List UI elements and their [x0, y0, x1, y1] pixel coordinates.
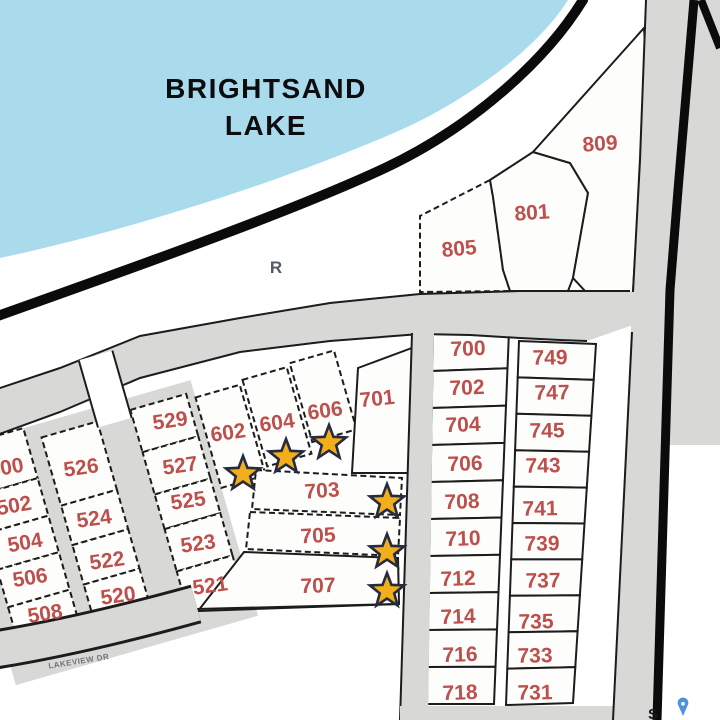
lot-label-731: 731: [517, 681, 553, 705]
lot-label-809: 809: [582, 131, 619, 156]
lot-label-718: 718: [442, 681, 478, 705]
lot-label-710: 710: [445, 527, 481, 551]
lot-label-524: 524: [75, 505, 113, 533]
lot-label-527: 527: [161, 452, 199, 480]
road-shoulder: [400, 706, 615, 720]
lot-label-805: 805: [441, 236, 478, 262]
lot-label-716: 716: [442, 643, 478, 667]
lot-label-525: 525: [169, 487, 207, 515]
watermark-text: S: [648, 706, 658, 720]
lot-label-522: 522: [88, 547, 126, 575]
lake-title-line1: BRIGHTSAND: [165, 73, 367, 104]
lot-label-700: 700: [450, 337, 486, 361]
lot-label-749: 749: [532, 346, 567, 370]
road-letter-label: R: [270, 258, 282, 277]
lot-label-602: 602: [209, 419, 247, 447]
lot-label-704: 704: [445, 413, 481, 437]
lot-label-737: 737: [525, 569, 560, 593]
map-pin-icon[interactable]: [678, 697, 689, 716]
lot-label-705: 705: [300, 524, 337, 549]
lot-label-606: 606: [306, 397, 344, 425]
lot-label-741: 741: [522, 497, 558, 521]
lot-label-745: 745: [529, 419, 565, 443]
lot-label-706: 706: [447, 452, 483, 476]
lot-label-739: 739: [524, 532, 559, 556]
lot-label-708: 708: [444, 490, 480, 514]
lake-title-line2: LAKE: [225, 110, 307, 141]
lot-label-701: 701: [358, 386, 396, 413]
lot-label-801: 801: [514, 200, 551, 225]
map-canvas: BRIGHTSAND LAKE R LAKEVIEW DR S 50050250…: [0, 0, 720, 720]
lot-label-604: 604: [258, 409, 296, 437]
lot-label-521: 521: [191, 572, 229, 600]
lot-label-733: 733: [517, 644, 552, 668]
lot-label-702: 702: [449, 376, 485, 400]
lot-label-526: 526: [62, 454, 100, 482]
lot-label-747: 747: [534, 381, 569, 405]
lot-label-735: 735: [518, 610, 554, 634]
lot-label-714: 714: [440, 605, 476, 629]
lot-label-523: 523: [179, 530, 217, 558]
lot-label-703: 703: [304, 478, 341, 503]
lot-label-743: 743: [525, 454, 560, 478]
lot-label-520: 520: [99, 582, 137, 610]
lot-label-707: 707: [300, 574, 336, 598]
lot-label-529: 529: [151, 407, 189, 435]
plat-map[interactable]: BRIGHTSAND LAKE R LAKEVIEW DR S 50050250…: [0, 0, 720, 720]
lot-label-712: 712: [440, 567, 476, 591]
